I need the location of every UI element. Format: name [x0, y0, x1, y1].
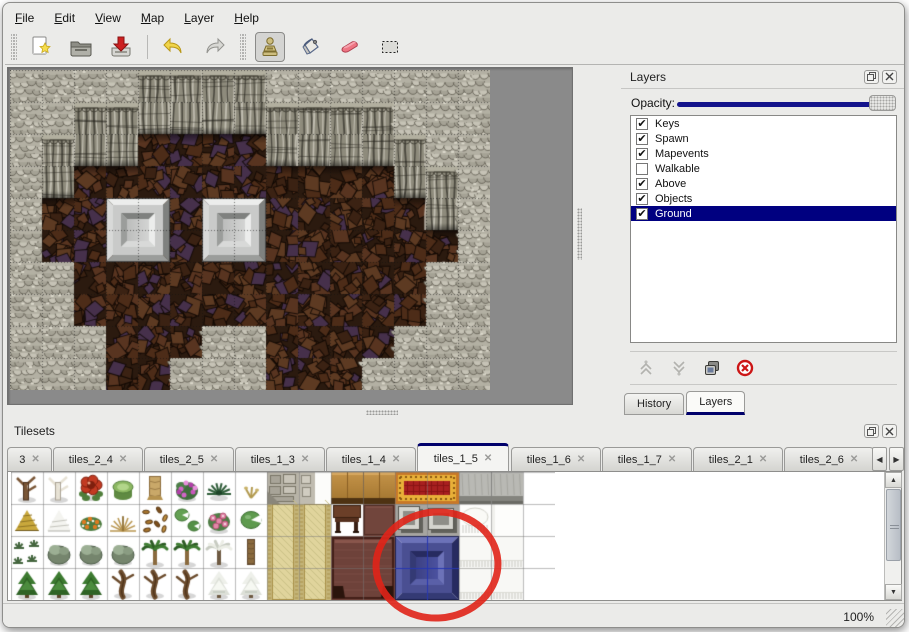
- redo-icon: [201, 34, 227, 60]
- tileset-tab-tiles_1_4[interactable]: tiles_1_4✕: [326, 447, 416, 471]
- layer-name: Keys: [655, 118, 679, 130]
- tab-layers[interactable]: Layers: [686, 391, 745, 415]
- move-layer-up-button[interactable]: [634, 356, 658, 380]
- menu-layer[interactable]: Layer: [174, 8, 224, 28]
- tilesets-panel-title: Tilesets: [5, 424, 55, 438]
- tileset-tab-tiles_2_1[interactable]: tiles_2_1✕: [693, 447, 783, 471]
- close-tab-icon[interactable]: ✕: [668, 454, 676, 465]
- new-file-icon: [28, 34, 54, 60]
- tab-label: tiles_2_4: [69, 454, 113, 466]
- layer-name: Above: [655, 178, 686, 190]
- tab-label: tiles_2_5: [160, 454, 204, 466]
- layer-row-walkable[interactable]: ✔ Walkable: [631, 161, 896, 176]
- menu-help-mnemonic: H: [234, 11, 243, 25]
- menu-file[interactable]: File: [5, 8, 44, 28]
- opacity-slider-handle[interactable]: [869, 95, 896, 111]
- toolbar: [5, 30, 904, 65]
- tileset-tab-3[interactable]: 3✕: [7, 447, 52, 471]
- tab-label: tiles_1_3: [251, 454, 295, 466]
- menu-edit[interactable]: Edit: [44, 8, 85, 28]
- float-icon: [867, 72, 876, 81]
- float-panel-button[interactable]: [864, 70, 879, 84]
- layer-checkbox[interactable]: ✔: [636, 193, 648, 205]
- layer-checkbox[interactable]: ✔: [636, 118, 648, 130]
- tab-label: tiles_1_5: [434, 453, 478, 465]
- tileset-tab-tiles_1_3[interactable]: tiles_1_3✕: [235, 447, 325, 471]
- check-icon: ✔: [637, 208, 646, 220]
- tab-label: tiles_1_6: [527, 454, 571, 466]
- toolbar-grip-2[interactable]: [240, 34, 246, 60]
- scroll-tabs-right-button[interactable]: ▶: [889, 447, 904, 471]
- delete-layer-button[interactable]: [733, 356, 757, 380]
- tab-label: tiles_1_7: [618, 454, 662, 466]
- layer-buttons: [630, 351, 897, 385]
- layer-checkbox[interactable]: ✔: [636, 208, 648, 220]
- tileset-tab-tiles_1_6[interactable]: tiles_1_6✕: [511, 447, 601, 471]
- float-tilesets-button[interactable]: [864, 424, 879, 438]
- check-icon: ✔: [637, 148, 646, 160]
- menu-file-rest: ile: [22, 11, 34, 25]
- undo-icon: [161, 34, 187, 60]
- float-icon: [867, 427, 876, 436]
- tileset-tab-tiles_1_7[interactable]: tiles_1_7✕: [602, 447, 692, 471]
- close-panel-button[interactable]: [882, 70, 897, 84]
- tileset-tab-tiles_2_4[interactable]: tiles_2_4✕: [53, 447, 143, 471]
- open-file-button[interactable]: [66, 32, 96, 62]
- menu-layer-mnemonic: L: [184, 11, 191, 25]
- scroll-tabs-left-button[interactable]: ◀: [872, 447, 887, 471]
- page: File Edit View Map Layer Help: [0, 0, 909, 632]
- layer-name: Spawn: [655, 133, 689, 145]
- layer-checkbox[interactable]: ✔: [636, 148, 648, 160]
- fill-bucket-icon: [298, 35, 322, 59]
- duplicate-layer-button[interactable]: [700, 356, 724, 380]
- menu-help[interactable]: Help: [224, 8, 269, 28]
- tab-label: 3: [19, 454, 25, 466]
- check-icon: ✔: [637, 118, 646, 130]
- move-layer-down-button[interactable]: [667, 356, 691, 380]
- layers-panel: Layers Opacity:: [621, 65, 904, 419]
- menu-map-rest: ap: [151, 11, 164, 25]
- layers-titlebar: Layers: [621, 65, 904, 89]
- menu-view-rest: iew: [103, 11, 121, 25]
- zoom-level-label: 100%: [843, 610, 874, 624]
- scrollbar-thumb[interactable]: [886, 489, 901, 561]
- layer-name: Mapevents: [655, 148, 709, 160]
- tab-label: tiles_1_4: [342, 454, 386, 466]
- tileset-tab-row: 3✕ tiles_2_4✕ tiles_2_5✕ tiles_1_3✕ tile…: [5, 443, 904, 471]
- arrow-left-icon: ◀: [876, 455, 882, 464]
- layers-panel-title: Layers: [621, 70, 666, 84]
- close-tab-icon[interactable]: ✕: [31, 454, 39, 465]
- menu-map-mnemonic: M: [141, 11, 151, 25]
- layer-checkbox[interactable]: ✔: [636, 133, 648, 145]
- eraser-tool-button[interactable]: [335, 32, 365, 62]
- close-tab-icon[interactable]: ✕: [301, 454, 309, 465]
- stamp-tool-button[interactable]: [255, 32, 285, 62]
- chevron-double-down-icon: [670, 359, 688, 377]
- opacity-row: Opacity:: [621, 93, 904, 113]
- horizontal-splitter-handle[interactable]: [366, 410, 398, 415]
- toolbar-grip[interactable]: [11, 34, 17, 60]
- layer-name: Ground: [655, 208, 692, 220]
- layer-row-objects[interactable]: ✔ Objects: [631, 191, 896, 206]
- arrow-down-icon: ▼: [890, 589, 897, 596]
- close-tab-icon[interactable]: ✕: [119, 454, 127, 465]
- layer-name: Objects: [655, 193, 692, 205]
- stamp-icon: [258, 35, 282, 59]
- check-icon: ✔: [637, 133, 646, 145]
- layer-checkbox[interactable]: ✔: [636, 163, 648, 175]
- close-icon: [885, 427, 894, 436]
- menu-view[interactable]: View: [85, 8, 131, 28]
- menu-help-rest: elp: [243, 11, 259, 25]
- close-tab-icon[interactable]: ✕: [759, 454, 767, 465]
- tilesets-titlebar: Tilesets: [5, 421, 904, 441]
- tileset-tab-tiles_2_5[interactable]: tiles_2_5✕: [144, 447, 234, 471]
- close-icon: [885, 72, 894, 81]
- close-tab-icon[interactable]: ✕: [210, 454, 218, 465]
- tileset-content: ▲ ▼: [7, 471, 902, 601]
- eraser-icon: [338, 35, 362, 59]
- tab-layers-label: Layers: [699, 396, 732, 408]
- close-tab-icon[interactable]: ✕: [577, 454, 585, 465]
- arrow-up-icon: ▲: [890, 477, 897, 484]
- opacity-label: Opacity:: [631, 96, 675, 110]
- menu-bar: File Edit View Map Layer Help: [5, 7, 269, 29]
- scroll-down-button[interactable]: ▼: [885, 584, 902, 600]
- layer-row-mapevents[interactable]: ✔ Mapevents: [631, 146, 896, 161]
- layer-list: ✔ Keys ✔ Spawn ✔ Mapevents ✔ Walkable ✔ …: [630, 115, 897, 343]
- select-tool-button[interactable]: [375, 32, 405, 62]
- menu-view-mnemonic: V: [95, 11, 103, 25]
- layer-name: Walkable: [655, 163, 700, 175]
- opacity-slider-track[interactable]: [677, 102, 894, 107]
- tab-label: tiles_2_6: [800, 454, 844, 466]
- tab-label: tiles_2_1: [709, 454, 753, 466]
- check-icon: ✔: [637, 178, 646, 190]
- vertical-splitter-handle[interactable]: [577, 208, 582, 260]
- select-rect-icon: [378, 35, 402, 59]
- app-window: File Edit View Map Layer Help: [2, 2, 905, 628]
- save-file-button[interactable]: [106, 32, 136, 62]
- redo-button[interactable]: [199, 32, 229, 62]
- status-bar: 100%: [3, 603, 905, 628]
- menu-layer-rest: ayer: [191, 11, 214, 25]
- map-canvas[interactable]: [10, 70, 490, 390]
- tileset-scrollbar: ▲ ▼: [884, 472, 901, 600]
- fill-tool-button[interactable]: [295, 32, 325, 62]
- dock-tabs: History Layers: [624, 391, 747, 415]
- tab-history-label: History: [637, 398, 671, 410]
- open-folder-icon: [68, 34, 94, 60]
- chevron-double-up-icon: [637, 359, 655, 377]
- layer-checkbox[interactable]: ✔: [636, 178, 648, 190]
- scroll-up-button[interactable]: ▲: [885, 472, 902, 488]
- tab-history[interactable]: History: [624, 393, 684, 415]
- close-tab-icon[interactable]: ✕: [850, 454, 858, 465]
- tileset-tab-tiles_1_5[interactable]: tiles_1_5✕: [417, 443, 509, 471]
- tileset-canvas[interactable]: [11, 472, 555, 600]
- save-icon: [108, 34, 134, 60]
- new-file-button[interactable]: [26, 32, 56, 62]
- resize-grip[interactable]: [886, 609, 904, 627]
- toolbar-separator: [147, 35, 148, 59]
- arrow-right-icon: ▶: [893, 455, 899, 464]
- menu-map[interactable]: Map: [131, 8, 174, 28]
- layer-row-spawn[interactable]: ✔ Spawn: [631, 131, 896, 146]
- tilesets-panel: Tilesets 3✕ tiles_2_4✕ tiles_2_5✕: [5, 421, 904, 605]
- duplicate-icon: [703, 359, 721, 377]
- layer-row-keys[interactable]: ✔ Keys: [631, 116, 896, 131]
- menu-edit-rest: dit: [62, 11, 75, 25]
- layer-row-ground[interactable]: ✔ Ground: [631, 206, 896, 221]
- tileset-tab-tiles_2_6[interactable]: tiles_2_6✕: [784, 447, 874, 471]
- close-tab-icon[interactable]: ✕: [392, 454, 400, 465]
- layer-row-above[interactable]: ✔ Above: [631, 176, 896, 191]
- map-viewport: [7, 67, 573, 405]
- close-tab-icon[interactable]: ✕: [484, 453, 492, 464]
- undo-button[interactable]: [159, 32, 189, 62]
- check-icon: ✔: [637, 193, 646, 205]
- close-tilesets-button[interactable]: [882, 424, 897, 438]
- delete-x-icon: [736, 359, 754, 377]
